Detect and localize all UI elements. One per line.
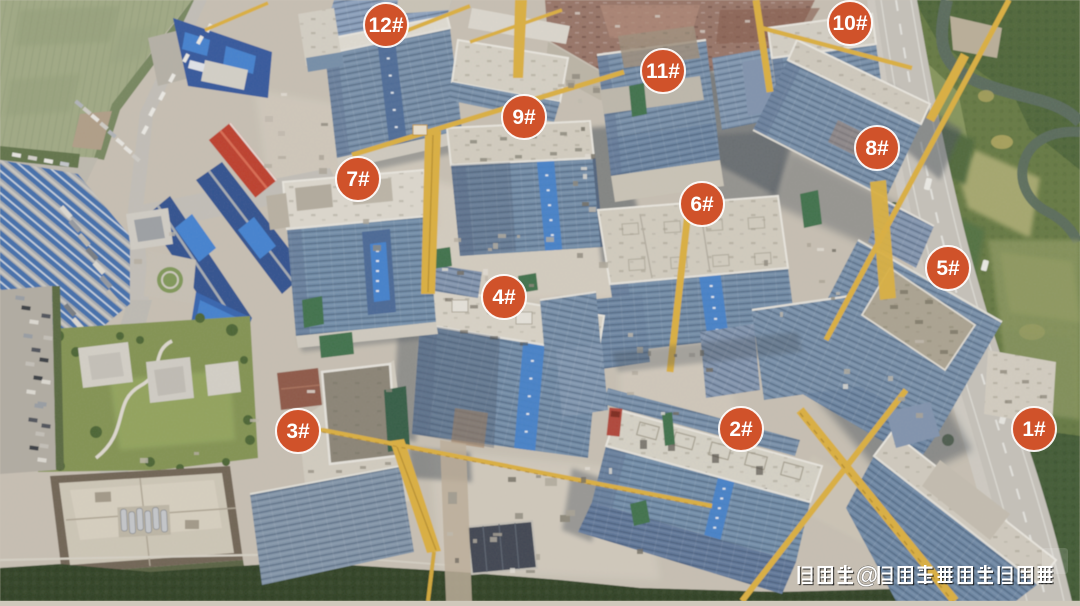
svg-text:10#: 10#: [832, 12, 867, 35]
svg-text:12#: 12#: [368, 14, 403, 37]
svg-text:1#: 1#: [1022, 418, 1046, 441]
svg-text:8#: 8#: [865, 137, 889, 160]
svg-text:@: @: [856, 562, 878, 588]
svg-text:5#: 5#: [936, 257, 960, 280]
svg-text:6#: 6#: [690, 193, 714, 216]
svg-text:2#: 2#: [729, 418, 753, 441]
svg-text:11#: 11#: [646, 60, 680, 83]
svg-text:4#: 4#: [492, 286, 516, 309]
svg-text:7#: 7#: [346, 168, 370, 191]
svg-text:9#: 9#: [512, 106, 536, 129]
svg-text:3#: 3#: [286, 420, 310, 443]
